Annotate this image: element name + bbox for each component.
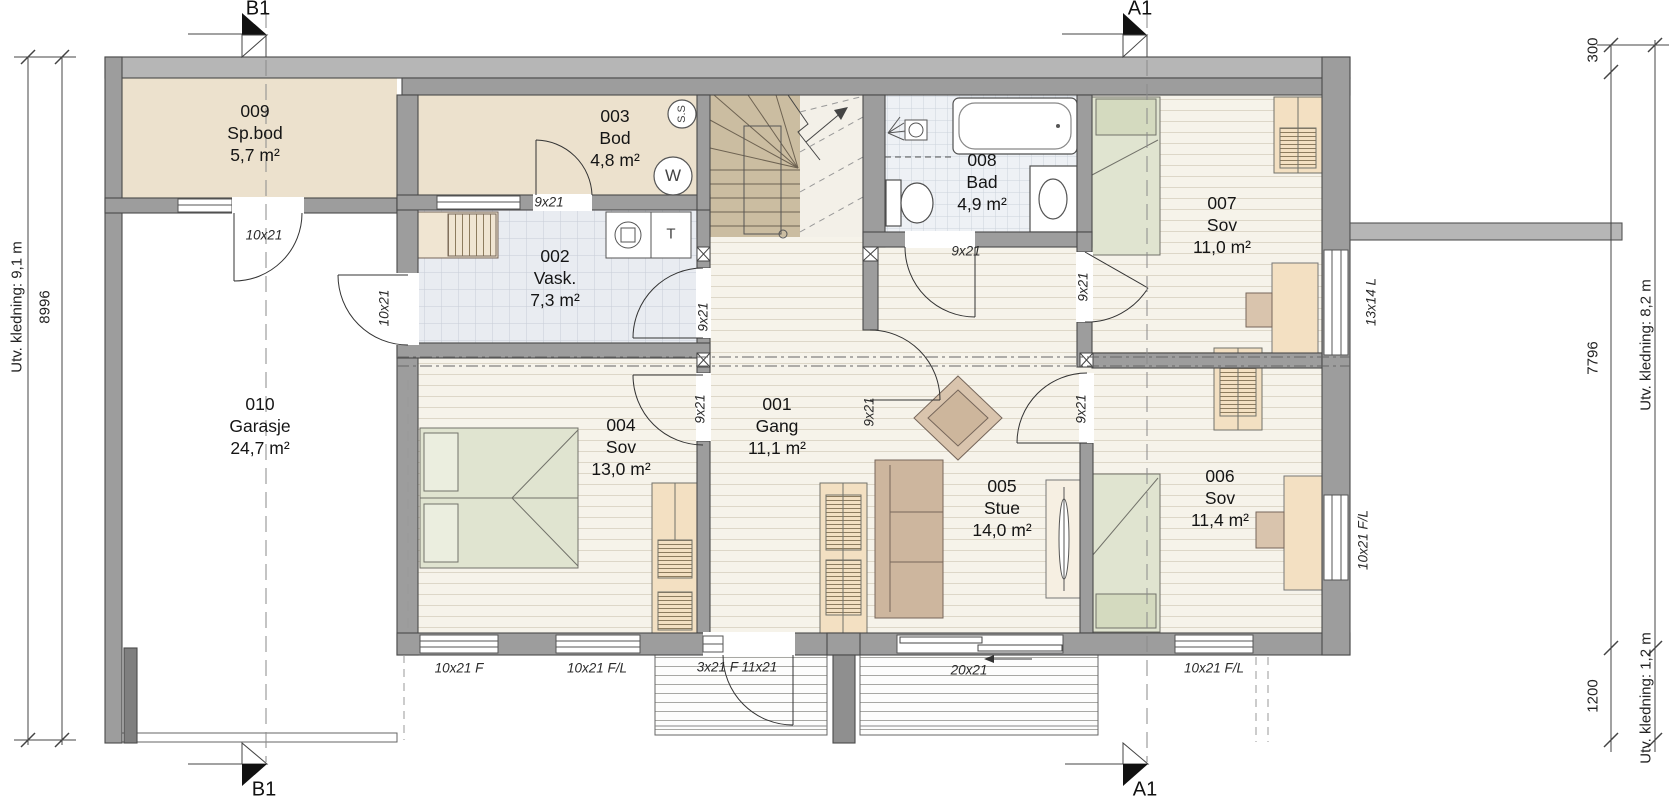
washing-machine xyxy=(606,212,651,258)
washbasin xyxy=(1030,166,1077,232)
opening-size-label: 9x21 xyxy=(1074,394,1089,423)
opening-size-label: 10x21 F/L xyxy=(1184,661,1244,676)
toilet xyxy=(886,180,933,226)
room-id: 007 xyxy=(1193,192,1251,214)
room-id: 006 xyxy=(1191,465,1249,487)
room-label-004: 004Sov13,0 m² xyxy=(591,414,650,480)
opening-size-label: 9x21 xyxy=(693,394,708,423)
room-name: Sp.bod xyxy=(227,122,282,144)
room-area: 4,8 m² xyxy=(590,149,640,171)
opening-size-label: 9x21 xyxy=(951,244,980,259)
opening-size-label: 10x21 xyxy=(246,228,283,243)
laundry-cabinet xyxy=(418,212,498,258)
room-area: 24,7 m² xyxy=(229,437,290,459)
section-label-b1-top: B1 xyxy=(246,0,270,21)
room-label-008: 008Bad4,9 m² xyxy=(957,149,1007,215)
tv-bench-005 xyxy=(1046,480,1080,598)
bed-004 xyxy=(420,428,578,568)
room-area: 11,1 m² xyxy=(748,437,806,459)
room-area: 14,0 m² xyxy=(972,519,1031,541)
room-id: 002 xyxy=(530,245,580,267)
room-label-007: 007Sov11,0 m² xyxy=(1193,192,1251,258)
opening-size-label: 10x21 xyxy=(377,290,392,327)
room-area: 5,7 m² xyxy=(227,144,282,166)
bed-007 xyxy=(1092,97,1160,255)
room-name: Stue xyxy=(972,497,1031,519)
appliance-label: W xyxy=(665,166,681,186)
room-area: 7,3 m² xyxy=(530,289,580,311)
room-name: Sov xyxy=(1193,214,1251,236)
room-area: 4,9 m² xyxy=(957,193,1007,215)
room-area: 11,4 m² xyxy=(1191,509,1249,531)
opening-size-label: 9x21 xyxy=(696,302,711,331)
room-name: Garasje xyxy=(229,415,290,437)
dim-left-outer: Utv. kledning: 9,1 m xyxy=(9,241,26,372)
section-label-a1-bottom: A1 xyxy=(1133,779,1157,800)
dim-right-kledning-82: Utv. kledning: 8,2 m xyxy=(1638,279,1655,410)
appliance-label: S.S xyxy=(676,105,688,123)
room-name: Bad xyxy=(957,171,1007,193)
wardrobe-004 xyxy=(652,483,698,633)
opening-size-label: 10x21 F/L xyxy=(1356,510,1371,570)
opening-size-label: 9x21 xyxy=(1076,272,1091,301)
section-label-a1-top: A1 xyxy=(1128,0,1152,21)
dim-right-300: 300 xyxy=(1585,37,1602,62)
room-id: 005 xyxy=(972,475,1031,497)
opening-size-label: 20x21 xyxy=(951,663,988,678)
room-label-009: 009Sp.bod5,7 m² xyxy=(227,100,282,166)
opening-size-label: 9x21 xyxy=(534,195,563,210)
room-label-006: 006Sov11,4 m² xyxy=(1191,465,1249,531)
room-label-001: 001Gang11,1 m² xyxy=(748,393,806,459)
room-name: Gang xyxy=(748,415,806,437)
room-id: 008 xyxy=(957,149,1007,171)
wardrobe-001 xyxy=(820,483,867,633)
room-name: Bod xyxy=(590,127,640,149)
room-id: 009 xyxy=(227,100,282,122)
appliance-label: T xyxy=(666,226,675,243)
bed-006 xyxy=(1092,474,1160,632)
dim-right-1200: 1200 xyxy=(1585,679,1602,712)
bathtub xyxy=(953,98,1077,154)
opening-size-label: 13x14 L xyxy=(1364,278,1379,326)
section-label-b1-bottom: B1 xyxy=(252,779,276,800)
room-id: 003 xyxy=(590,105,640,127)
wardrobe-007 xyxy=(1274,97,1322,173)
room-id: 001 xyxy=(748,393,806,415)
room-name: Vask. xyxy=(530,267,580,289)
room-label-003: 003Bod4,8 m² xyxy=(590,105,640,171)
room-label-002: 002Vask.7,3 m² xyxy=(530,245,580,311)
dim-right-7796: 7796 xyxy=(1585,341,1602,374)
opening-size-label: 10x21 F xyxy=(435,661,484,676)
dim-right-kledning-12: Utv. kledning: 1,2 m xyxy=(1638,632,1655,763)
room-id: 004 xyxy=(591,414,650,436)
room-area: 11,0 m² xyxy=(1193,236,1251,258)
room-name: Sov xyxy=(591,436,650,458)
dim-left-inner: 8996 xyxy=(37,290,54,323)
opening-size-label: 9x21 xyxy=(862,397,877,426)
room-label-010: 010Garasje24,7 m² xyxy=(229,393,290,459)
room-area: 13,0 m² xyxy=(591,458,650,480)
sofa-005 xyxy=(875,460,943,618)
room-id: 010 xyxy=(229,393,290,415)
room-name: Sov xyxy=(1191,487,1249,509)
opening-size-label: 10x21 F/L xyxy=(567,661,627,676)
opening-size-label: 3x21 F 11x21 xyxy=(697,660,778,675)
floor-plan-canvas: B1 A1 B1 A1 Utv. kledning: 9,1 m 8996 30… xyxy=(0,0,1670,800)
room-label-005: 005Stue14,0 m² xyxy=(972,475,1031,541)
